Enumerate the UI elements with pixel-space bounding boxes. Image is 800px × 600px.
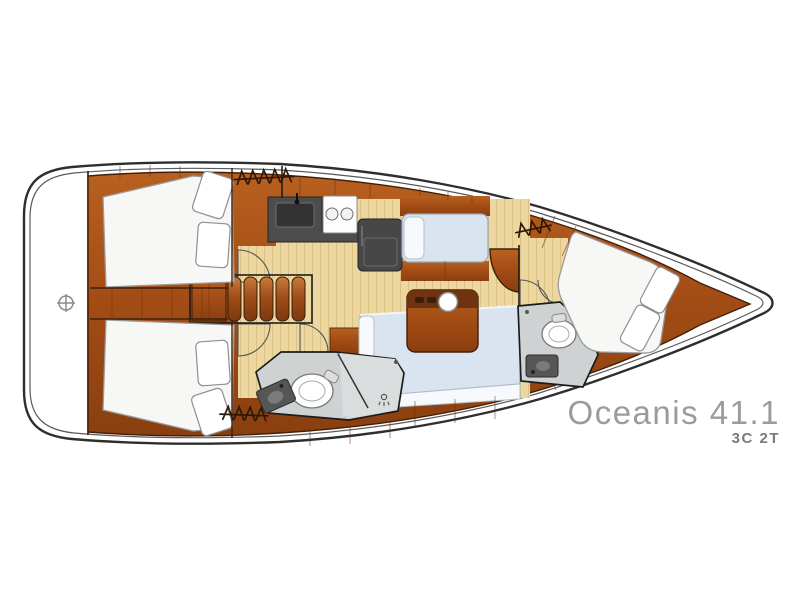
saloon-table: [407, 290, 478, 352]
sink-icon: [526, 355, 558, 377]
faucet-base: [295, 200, 300, 205]
table-slot: [415, 297, 424, 303]
stove-burner-icon: [326, 208, 338, 220]
forward-settee: [402, 214, 488, 262]
step: [228, 277, 241, 321]
sink-icon: [276, 203, 314, 227]
floorplan-page: Oceanis 41.1 3C 2T: [0, 0, 800, 600]
settee-pillow: [359, 316, 374, 359]
toilet-tank: [552, 313, 567, 323]
settee-pillow: [404, 217, 424, 259]
pillow: [196, 222, 231, 268]
table-cupholder: [439, 293, 458, 312]
table-slot: [427, 297, 436, 303]
layout-code-label: 3C 2T: [732, 430, 780, 447]
toilet-icon: [542, 320, 576, 348]
cabinet-above-settee: [400, 196, 490, 216]
yacht-floorplan: Oceanis 41.1 3C 2T: [0, 0, 800, 600]
refrigerator: [358, 219, 402, 271]
step: [292, 277, 305, 321]
step: [244, 277, 257, 321]
hinge-dot: [394, 360, 398, 364]
hinge-dot: [525, 310, 529, 314]
aft-head: [256, 352, 404, 420]
pillow: [196, 340, 231, 386]
boat-model-label: Oceanis 41.1: [568, 394, 780, 431]
step: [260, 277, 273, 321]
stove-burner-icon: [341, 208, 353, 220]
step: [276, 277, 289, 321]
shower-floor: [340, 353, 403, 418]
